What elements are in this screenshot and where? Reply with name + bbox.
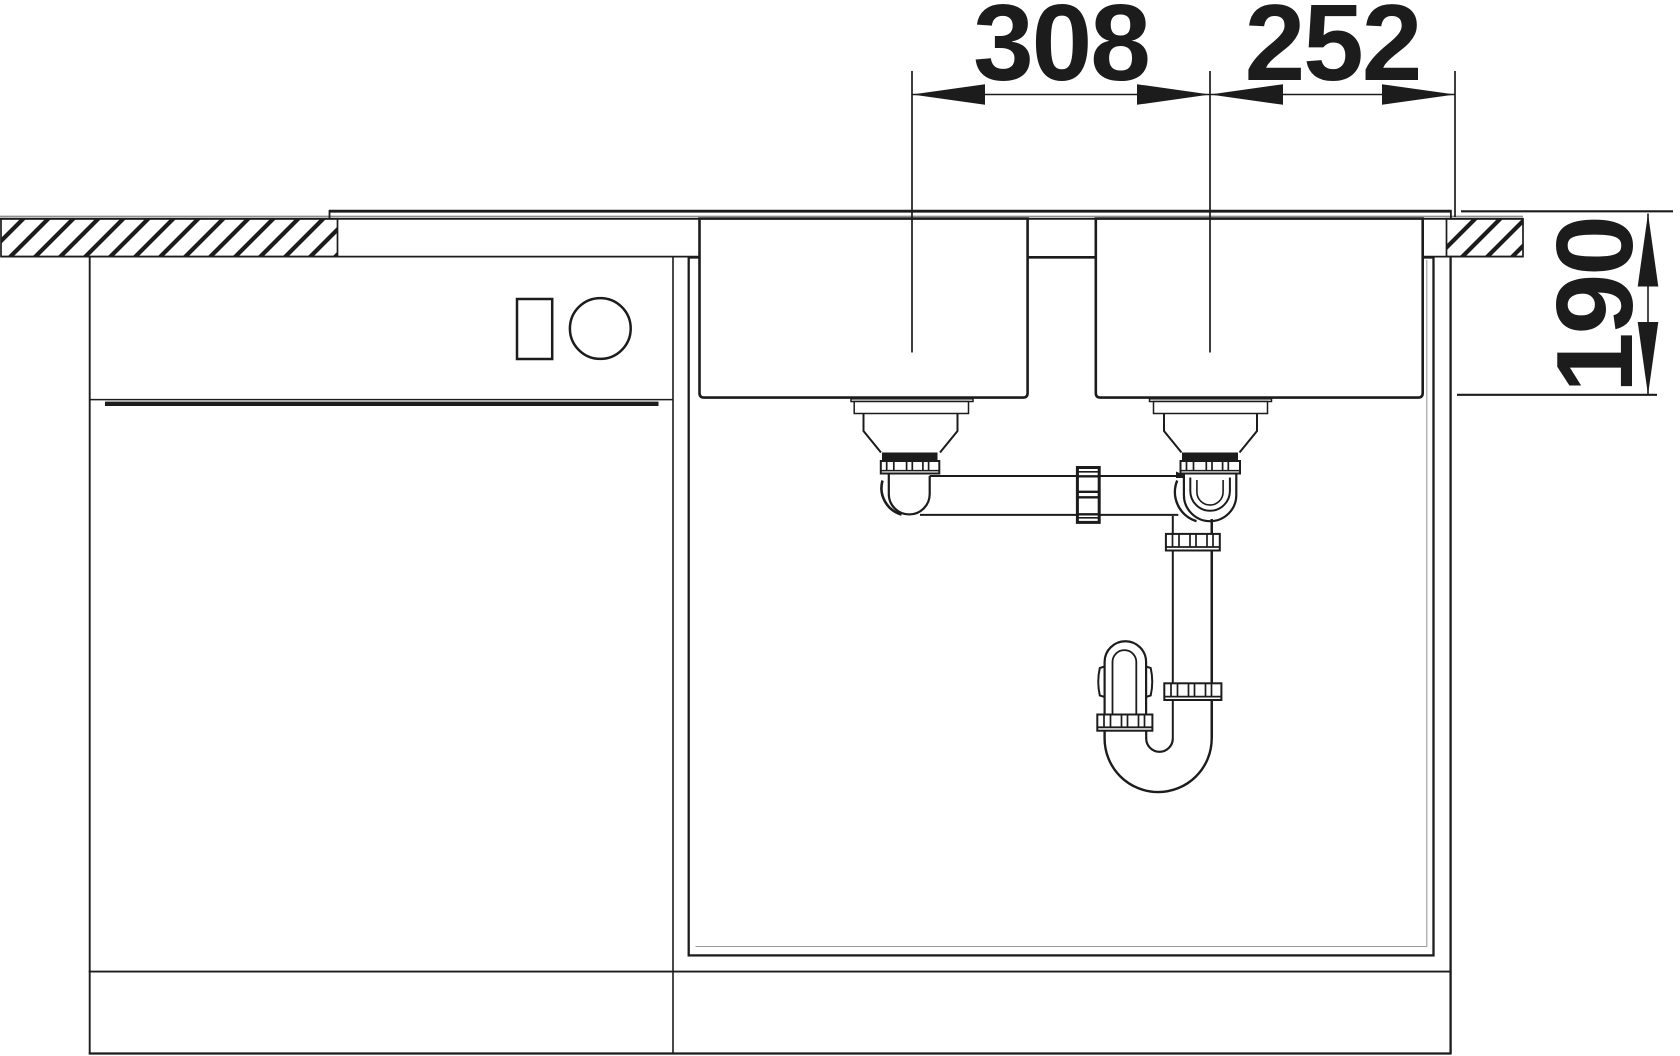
svg-text:190: 190 bbox=[1534, 217, 1656, 393]
svg-text:252: 252 bbox=[1245, 0, 1421, 104]
svg-text:308: 308 bbox=[973, 0, 1149, 104]
